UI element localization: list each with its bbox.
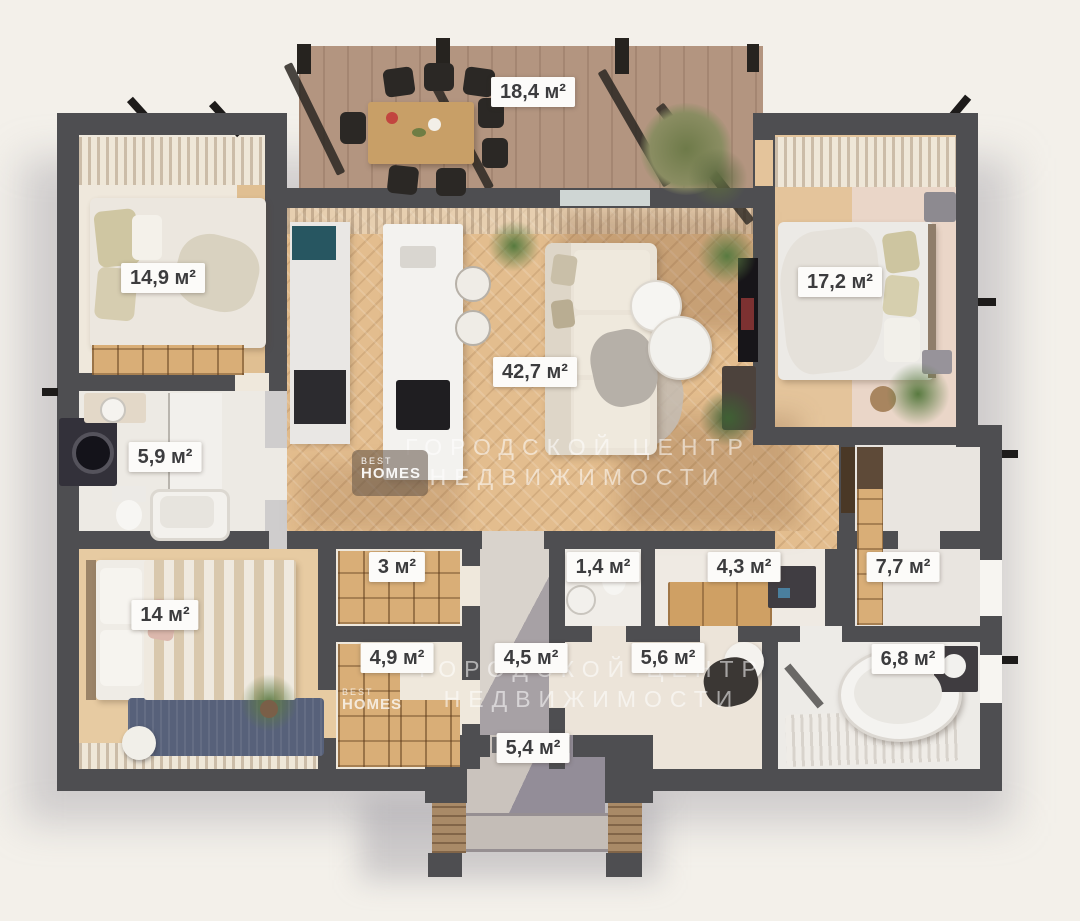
wall-screen xyxy=(292,226,336,260)
watermark-agency: ГОРОДСКОЙ ЦЕНТР НЕДВИЖИМОСТИ xyxy=(405,432,751,492)
bathtub-inner xyxy=(160,496,214,528)
wall xyxy=(57,113,287,135)
sink xyxy=(100,397,126,423)
window xyxy=(980,655,1002,703)
fireplace-glow xyxy=(741,298,754,330)
wall xyxy=(753,113,978,135)
area-label-closet: 3 м² xyxy=(369,552,425,582)
door-opening xyxy=(462,566,480,606)
logo-text-homes: HOMES xyxy=(361,466,428,481)
chair xyxy=(424,63,454,91)
tall-cabinet xyxy=(841,447,855,513)
wall xyxy=(956,113,978,447)
pillow xyxy=(100,630,142,686)
watermark-agency: ГОРОДСКОЙ ЦЕНТР НЕДВИЖИМОСТИ xyxy=(419,654,765,714)
plant xyxy=(688,148,748,208)
porch-pillar-brick xyxy=(432,803,466,853)
wall xyxy=(336,626,462,642)
bedroom1-curtain xyxy=(79,137,265,185)
pouf xyxy=(122,726,156,760)
plant xyxy=(698,226,756,286)
area-label-bathroom-right: 6,8 м² xyxy=(872,644,945,674)
wall-tick xyxy=(978,298,996,306)
watermark-agency-line2: НЕДВИЖИМОСТИ xyxy=(419,684,765,714)
pillow xyxy=(550,253,578,286)
watermark-agency-line1: ГОРОДСКОЙ ЦЕНТР xyxy=(419,654,765,684)
table-decor-flowers xyxy=(386,112,398,124)
porch-pillar-base xyxy=(606,853,642,877)
wall xyxy=(753,427,978,445)
wall xyxy=(642,769,1002,791)
chair xyxy=(340,112,366,144)
terrace-sliding-door xyxy=(560,190,650,206)
sink xyxy=(566,585,596,615)
window xyxy=(980,560,1002,616)
door-opening xyxy=(898,531,940,549)
door-opening xyxy=(800,626,842,642)
watermark-logo: BEST HOMES xyxy=(342,688,402,712)
area-label-bedroom-top-right: 17,2 м² xyxy=(798,267,882,297)
pergola-post xyxy=(747,44,759,72)
door-opening xyxy=(592,626,626,642)
wall xyxy=(57,769,448,791)
watermark-logo: BEST HOMES xyxy=(352,450,428,496)
toilet-bowl xyxy=(116,500,142,530)
pergola-post xyxy=(297,44,311,74)
area-label-hallway: 5,6 м² xyxy=(632,643,705,673)
pillow xyxy=(132,215,162,260)
area-label-entrance-hall: 4,5 м² xyxy=(495,643,568,673)
watermark-agency-line1: ГОРОДСКОЙ ЦЕНТР xyxy=(405,432,751,462)
area-label-utility: 4,3 м² xyxy=(708,552,781,582)
wall-tick xyxy=(1002,656,1018,664)
door-opening xyxy=(775,531,837,549)
bar-stool xyxy=(455,266,491,302)
area-label-bedroom-bottom-left: 14 м² xyxy=(131,600,198,630)
table-decor-greens xyxy=(412,128,426,137)
area-label-porch: 5,4 м² xyxy=(497,733,570,763)
plant xyxy=(488,220,540,272)
pillow xyxy=(884,318,920,362)
washer-drum xyxy=(72,432,114,474)
shower xyxy=(168,393,222,489)
floor-plan-canvas: ГОРОДСКОЙ ЦЕНТР НЕДВИЖИМОСТИ ГОРОДСКОЙ Ц… xyxy=(0,0,1080,921)
bedroom2-curtain xyxy=(775,137,956,187)
porch-pillar-base xyxy=(428,853,462,877)
pillow xyxy=(881,230,920,274)
door-opening xyxy=(265,448,287,500)
area-label-living-kitchen: 42,7 м² xyxy=(493,357,577,387)
area-label-wardrobe: 4,9 м² xyxy=(361,643,434,673)
area-label-pantry: 7,7 м² xyxy=(867,552,940,582)
cabinet xyxy=(668,582,772,626)
chair xyxy=(387,165,420,196)
door-opening xyxy=(235,373,269,391)
headboard xyxy=(86,560,96,700)
porch-steps xyxy=(462,813,608,852)
cooktop xyxy=(396,380,450,430)
pillow xyxy=(882,274,920,317)
coffee-table xyxy=(648,316,712,380)
chair xyxy=(382,66,416,98)
table-decor-plate xyxy=(428,118,441,131)
area-label-bathroom-left: 5,9 м² xyxy=(129,442,202,472)
door-opening xyxy=(482,531,544,549)
wall-tick xyxy=(42,388,58,396)
chair xyxy=(436,168,466,196)
bar-stool xyxy=(455,310,491,346)
wall xyxy=(265,113,287,391)
pergola-post xyxy=(615,38,629,74)
area-label-wc: 1,4 м² xyxy=(567,552,640,582)
wall-tick xyxy=(1002,450,1018,458)
door-opening xyxy=(755,140,773,186)
area-label-bedroom-top-left: 14,9 м² xyxy=(121,263,205,293)
shelf-cubbies xyxy=(92,345,244,375)
plant xyxy=(886,362,950,426)
wall xyxy=(641,549,655,642)
porch-pillar-brick xyxy=(608,803,642,853)
sink xyxy=(942,654,966,678)
small-item xyxy=(778,588,790,598)
wall xyxy=(287,531,1002,549)
porch-pillar xyxy=(605,735,653,803)
plant-pot xyxy=(260,700,278,718)
tall-cabinet xyxy=(857,447,883,489)
island-sink xyxy=(400,246,436,268)
storage-box xyxy=(924,192,956,222)
door-opening xyxy=(700,626,738,642)
chair xyxy=(482,138,508,168)
pillow xyxy=(550,299,575,329)
watermark-agency-line2: НЕДВИЖИМОСТИ xyxy=(405,462,751,492)
logo-text-homes: HOMES xyxy=(342,697,402,712)
area-label-terrace: 18,4 м² xyxy=(491,77,575,107)
oven xyxy=(294,370,346,424)
